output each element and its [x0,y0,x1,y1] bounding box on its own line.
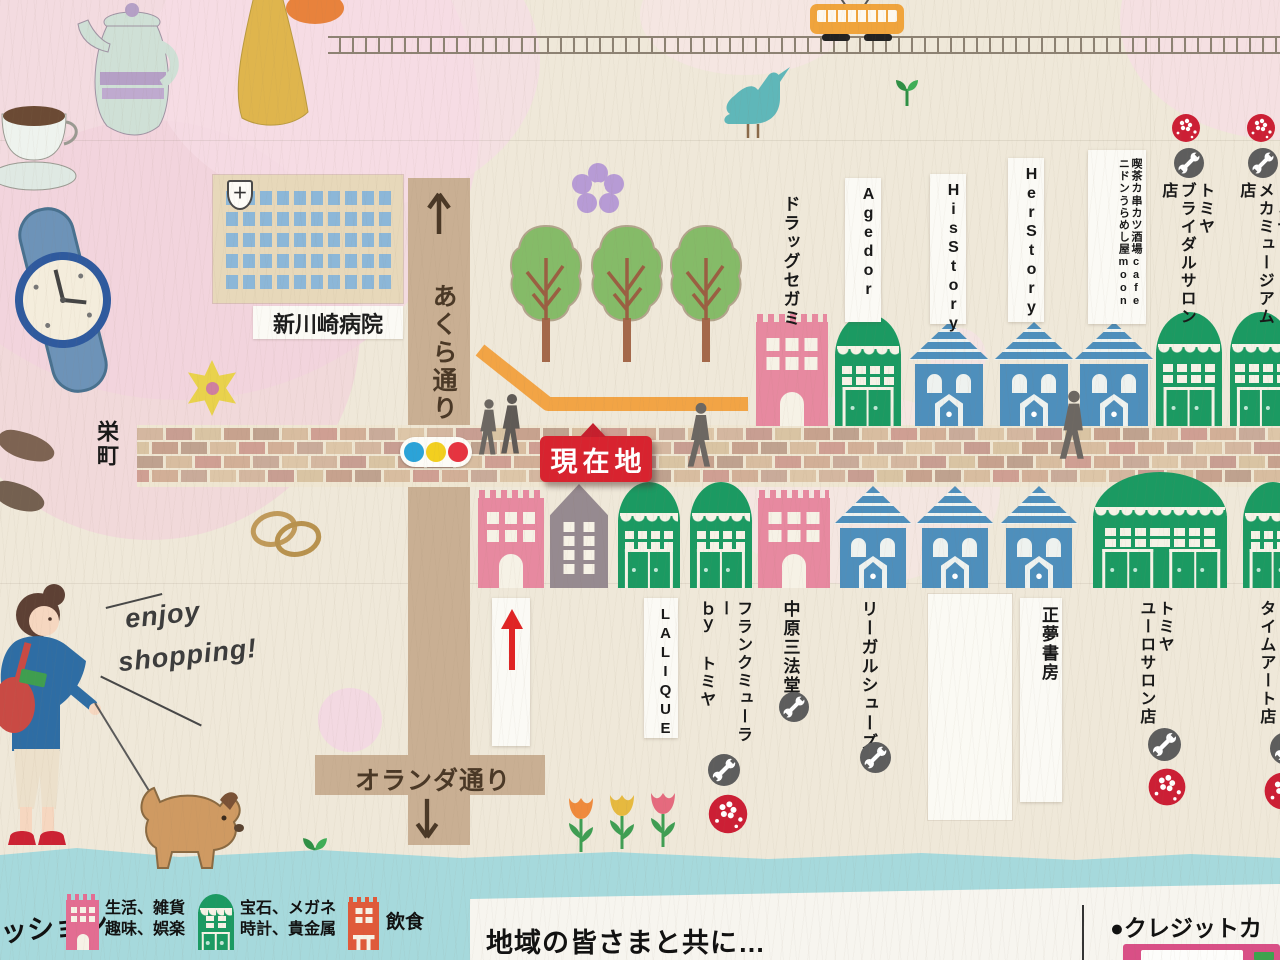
shop-building [840,528,906,588]
shopping-street-map: ＋ 新川崎病院 あくら通り オランダ通り 栄町 [0,0,1280,960]
shop-name: リーガルシューズ [858,600,878,752]
rings-illustration [248,503,326,565]
shop-label-franck-muller: フランクミューラー ｂｙ トミヤ [696,600,751,750]
sakura-icon [1262,770,1280,812]
shop-building [1243,520,1280,588]
shop-building [915,364,983,426]
hospital-label: 新川崎病院 [253,306,403,339]
shop-name: トミヤ [1195,182,1213,332]
shop-building [1080,364,1148,426]
shop-label-agedor: Agedor [845,178,881,322]
tree-illustration [665,222,747,364]
shop-name: トミヤ [1273,182,1280,342]
shop-label-cafemoon: 喫茶カニドン 串カツ酒場うらめし屋 cafe moon [1088,150,1146,324]
flower-illustration [572,163,624,215]
street-akura-name: あくら通り [425,283,461,423]
dog-illustration [118,778,250,876]
legend-item-label: 宝石、メガネ 時計、貴金属 [240,898,336,940]
shop-label-masayume: 正夢書房 [1020,598,1062,802]
legend-line: 生活、雑貨 [105,898,185,919]
shoes-illustration [0,425,58,530]
hospital-building: ＋ [213,175,403,303]
shop-label-nakahara: 中原三法堂 [780,600,800,695]
shop-name: ブライダルサロン店 [1158,182,1195,332]
note-line1: enjoy [124,596,202,635]
shop-building [756,322,828,426]
shop-name: Agedor [849,186,877,300]
shop-building [922,528,988,588]
shop-name: 喫茶カニドン [1092,158,1142,195]
wrench-icon [1174,148,1204,178]
wrench-icon [1248,148,1278,178]
legend-red-building-icon [348,902,379,950]
tram-illustration [806,0,908,46]
up-arrow-icon [424,188,454,236]
note-line2: shopping! [117,633,259,678]
bird-illustration [720,60,795,140]
shop-building [690,520,752,588]
footer-divider [1082,905,1084,960]
traffic-light-icon [400,437,472,467]
shop-name: HisStory [934,182,962,334]
legend-line: 飲食 [386,912,424,933]
pedestrian-silhouette [686,398,716,472]
blank-label [928,594,1012,820]
shop-name: HerStory [1012,166,1040,318]
shop-building [1230,352,1280,426]
shop-building [550,484,608,588]
shop-label-regal: リーガルシューズ [858,600,878,752]
sakura-icon [706,792,750,836]
up-arrow-marker [492,598,530,746]
shop-name: ドラッグセガミ [780,195,800,328]
shop-label-lalique: LALIQUE [644,598,678,738]
shop-building [835,354,901,426]
tulip-illustration [563,794,599,858]
shop-name: 串カツ酒場うらめし屋 [1092,195,1142,256]
wrench-icon [1270,732,1280,765]
down-arrow-icon [412,797,442,843]
legend-line: 趣味、娯楽 [105,919,185,940]
wrench-icon [708,754,740,786]
sakura-icon [1146,766,1188,808]
railway-track [328,36,1280,54]
star-center-dot [206,382,219,395]
legend-item-label: 飲食 [386,912,424,933]
current-location-badge: 現在地 [540,436,652,482]
shop-label-tomiya-bridal: トミヤ ブライダルサロン店 [1158,182,1213,332]
shop-name: 正夢書房 [1024,606,1058,682]
red-arrow-icon [498,606,526,672]
current-location-label: 現在地 [551,440,647,479]
teapot-illustration [70,0,190,146]
shop-building [618,520,680,588]
shop-label-tomiya-mecha: トミヤ メカミュージアム店 [1236,182,1280,342]
shop-name: cafe moon [1092,256,1142,316]
shop-building [1156,352,1222,426]
legend-item-label: 生活、雑貨 趣味、娯楽 [105,898,185,940]
community-message: 地域の皆さまと共に… [486,921,766,960]
hospital-windows [226,191,391,289]
fold-line [0,140,1280,141]
decorative-blob [318,688,382,752]
shop-name: ｂｙ トミヤ [696,600,714,750]
shop-name: フランクミューラー [714,600,751,750]
shop-name: LALIQUE [648,606,674,739]
wrench-icon [1148,728,1181,761]
tree-illustration [505,222,587,364]
credit-card-image [1123,944,1280,960]
wrench-icon [860,742,891,773]
tulip-illustration [645,789,681,853]
coffee-cup-illustration [0,82,83,197]
shop-building [1093,516,1227,588]
shop-label-hisstory: HisStory [930,174,966,324]
shop-label-drug-segami: ドラッグセガミ [780,195,800,328]
shop-building [478,498,544,588]
tulip-illustration [604,791,640,855]
pedestrian-silhouette [1058,386,1090,464]
shop-name: メカミュージアム店 [1236,182,1273,342]
legend-line: 時計、貴金属 [240,919,336,940]
wrench-icon [779,692,809,722]
pedestrian-silhouette [498,385,526,463]
hospital-name: 新川崎病院 [273,307,383,339]
shop-building [1006,528,1072,588]
street-oranda: オランダ通り [315,755,545,795]
legend-line: 宝石、メガネ [240,898,336,919]
shop-name: 中原三法堂 [780,600,800,695]
district-label: 栄町 [90,420,122,468]
legend-pink-building-icon [66,900,99,950]
shop-label-herstory: HerStory [1008,158,1044,322]
street-akura-upper: あくら通り [408,178,470,425]
sakura-icon [1170,112,1202,144]
legend-green-building-icon [198,912,234,950]
street-oranda-name: オランダ通り [355,761,511,797]
shop-building [758,498,830,588]
sakura-icon [1245,112,1277,144]
tree-illustration [586,222,668,364]
sprout-icon [895,78,919,106]
